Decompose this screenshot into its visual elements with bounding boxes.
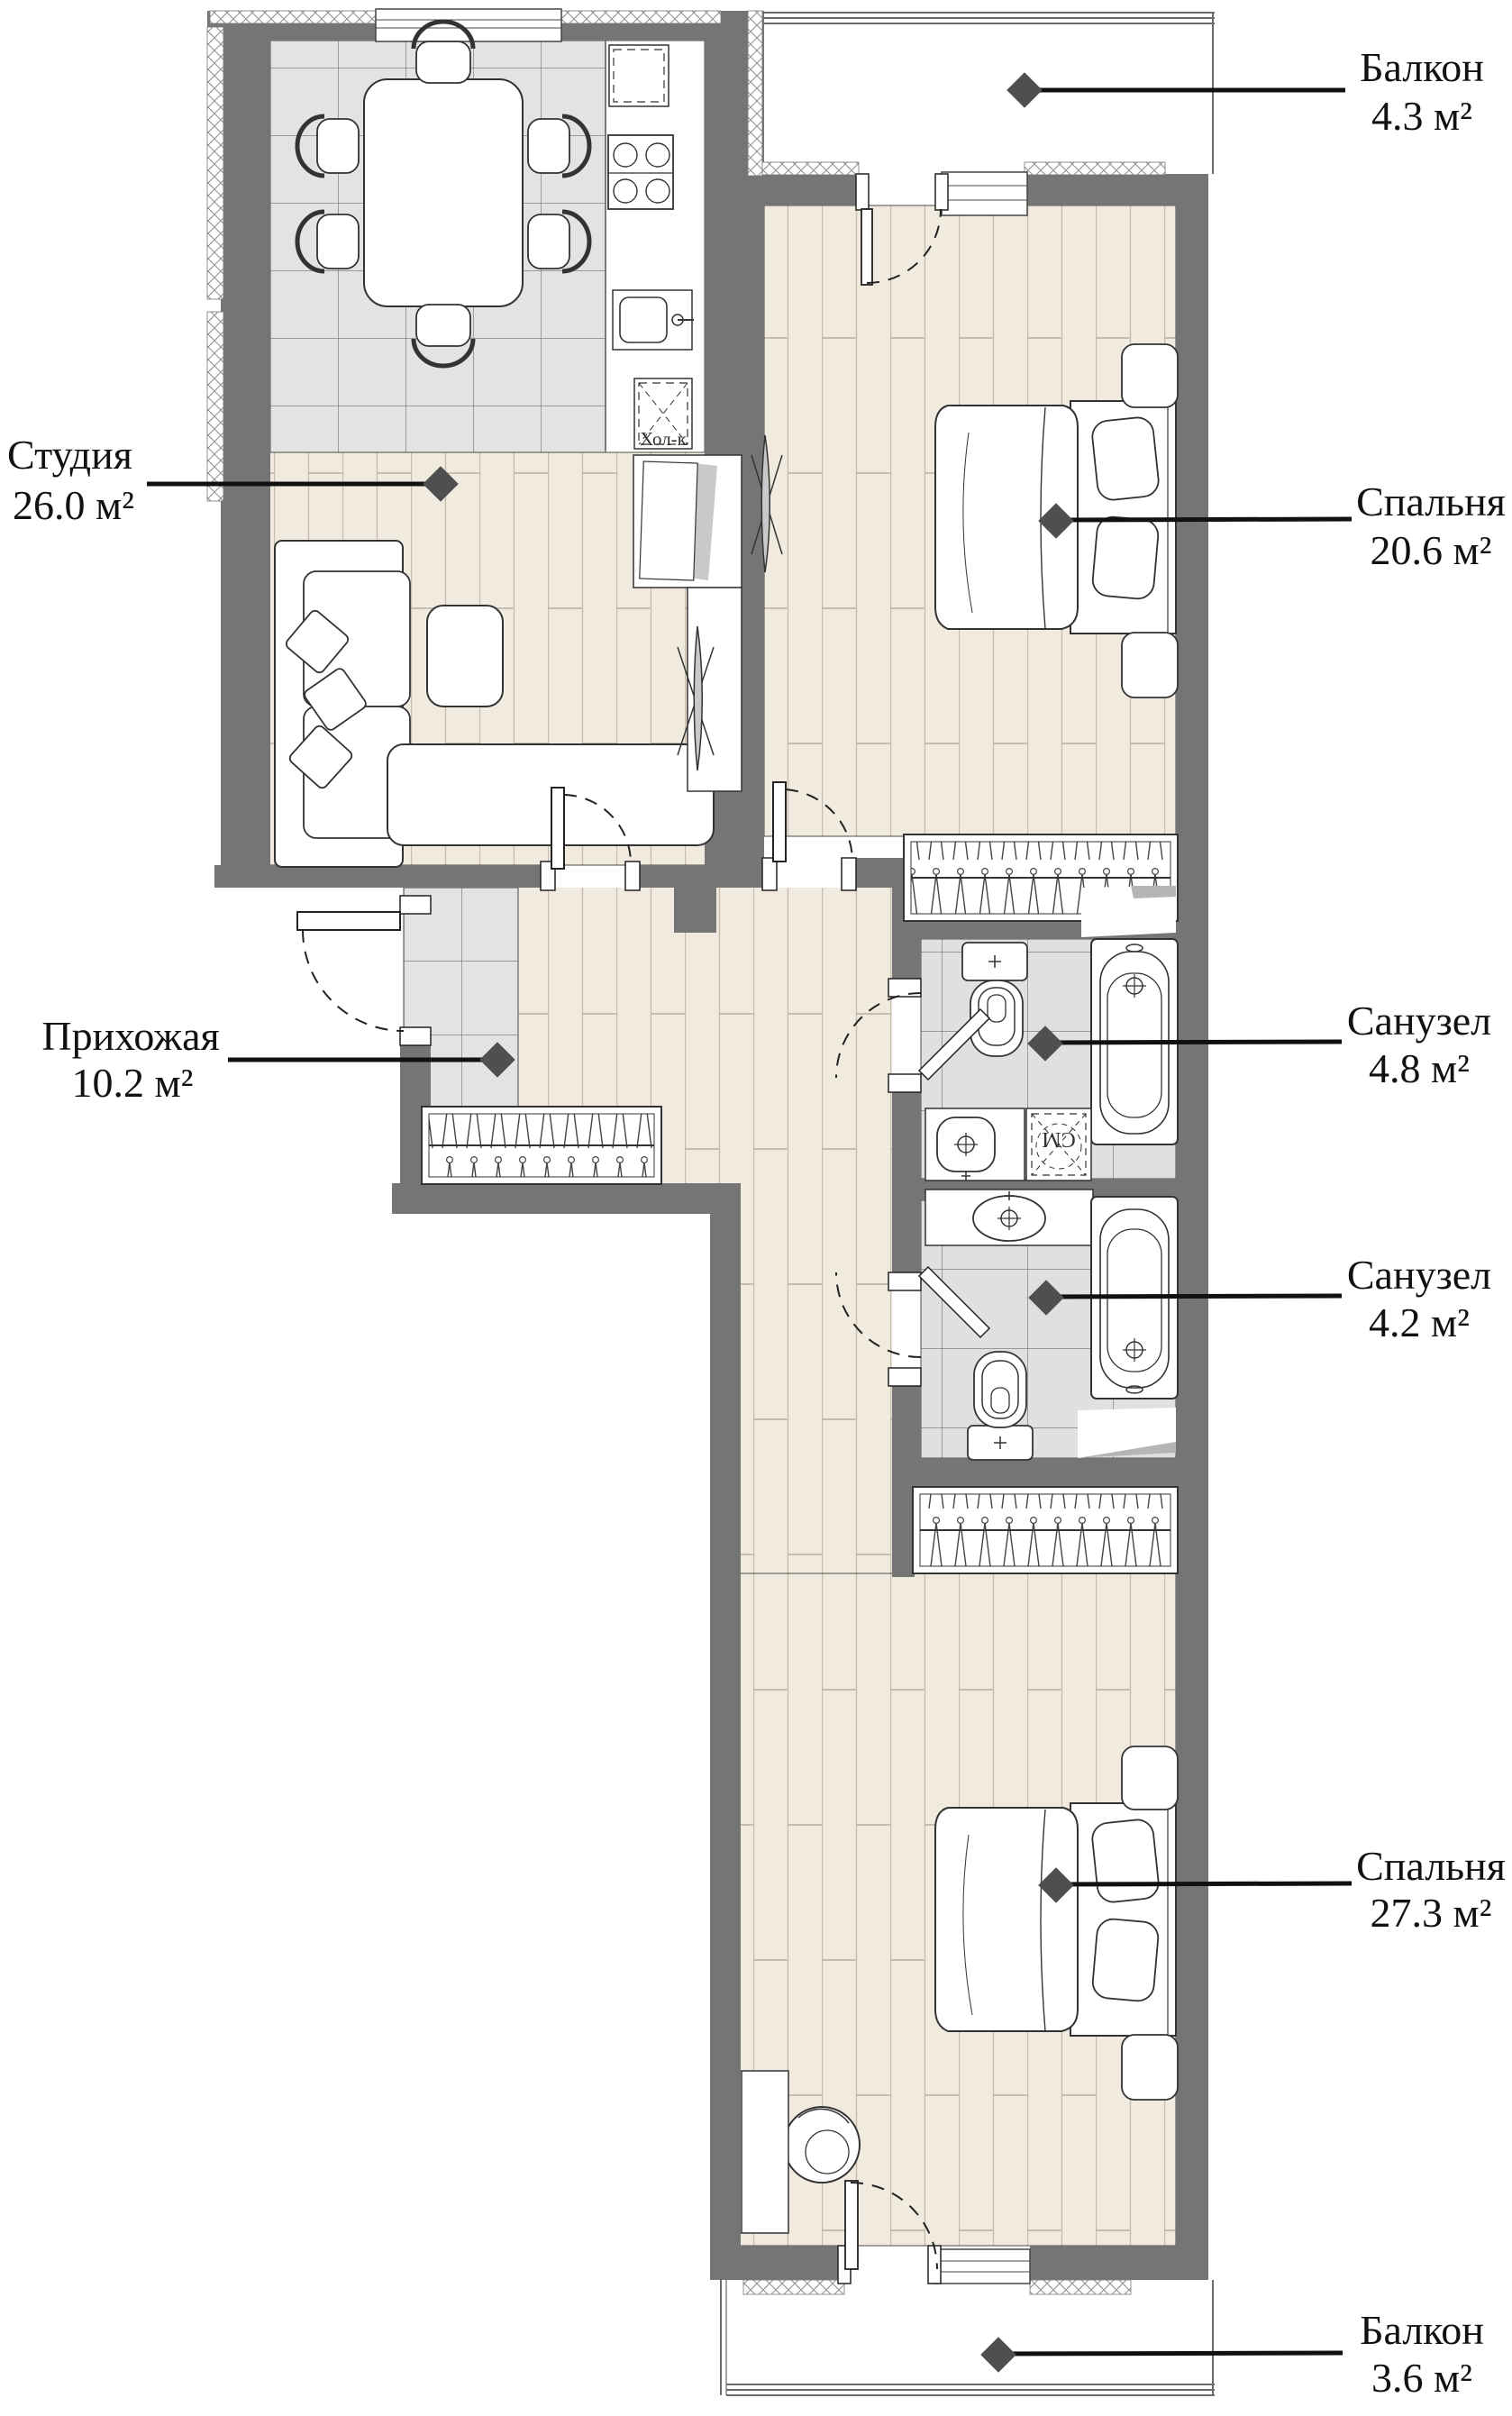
nightstand xyxy=(1122,344,1178,407)
wall-right xyxy=(1176,174,1208,2280)
label-balcony-bottom-area: 3.6 м² xyxy=(1371,2355,1472,2401)
kitchen-sink-icon xyxy=(613,290,694,350)
wall-balcony-top-left xyxy=(710,11,748,176)
wall-stub-corridor xyxy=(674,888,716,933)
corridor-floor xyxy=(739,1183,892,1573)
label-bedroom-top-name: Спальня xyxy=(1356,479,1506,524)
balcony-top-parapet xyxy=(748,11,1215,176)
wardrobe-hallway xyxy=(422,1107,661,1184)
bathroom-1-sink-icon xyxy=(925,1108,1025,1181)
left-window-1 xyxy=(207,27,223,299)
washer-label: СМ xyxy=(1042,1127,1075,1151)
bedroom-top-window xyxy=(942,172,1027,215)
kitchen-cabinet xyxy=(609,45,669,106)
label-balcony-bottom-name: Балкон xyxy=(1360,2307,1484,2353)
label-studio-area: 26.0 м² xyxy=(13,482,134,528)
label-balcony-top-area: 4.3 м² xyxy=(1371,93,1472,139)
label-bedroom-bottom-area: 27.3 м² xyxy=(1371,1890,1492,1936)
toilet-2-icon xyxy=(968,1352,1033,1460)
stove-icon xyxy=(608,135,673,209)
dining-table xyxy=(364,79,523,306)
wall-bedroom-top-north-left xyxy=(705,174,859,205)
bedroom-bottom-window xyxy=(933,2249,1030,2284)
nightstand xyxy=(1122,633,1178,697)
wardrobe-bedroom-bottom xyxy=(913,1487,1178,1573)
fridge-label: Хол-к xyxy=(640,428,688,450)
wall-corridor-left xyxy=(710,1183,741,2273)
wall-left xyxy=(221,11,270,888)
wall-bathroom-2-bottom xyxy=(915,1458,1176,1489)
wall-studio-bottom-right xyxy=(631,865,764,888)
label-hallway-name: Прихожая xyxy=(41,1013,219,1059)
balcony-bottom-parapet xyxy=(721,2280,1215,2395)
tv-console xyxy=(678,588,742,791)
label-bathroom-2-name: Санузел xyxy=(1347,1252,1491,1298)
marker-balcony-top xyxy=(1006,72,1043,108)
console-table xyxy=(742,2071,788,2233)
coffee-table xyxy=(427,606,503,707)
fridge-icon: Хол-к xyxy=(634,378,692,450)
wall-bedroom-top-north-right xyxy=(1025,174,1207,205)
floor-plan: Хол-к xyxy=(0,0,1512,2416)
toilet-1-icon xyxy=(962,943,1027,1056)
wall-bedroom-bottom-south-right xyxy=(1030,2246,1207,2280)
armchair xyxy=(784,2107,860,2183)
label-hallway-area: 10.2 м² xyxy=(72,1060,194,1106)
wall-studio-bottom-left xyxy=(214,865,550,888)
wall-hall-bottom xyxy=(392,1183,710,1214)
label-bedroom-bottom-name: Спальня xyxy=(1356,1843,1506,1889)
label-bedroom-top-area: 20.6 м² xyxy=(1371,527,1492,573)
label-bathroom-2-area: 4.2 м² xyxy=(1369,1299,1470,1345)
washing-machine-icon: СМ xyxy=(1026,1108,1091,1181)
studio-wardrobe xyxy=(633,455,742,588)
bathroom-2-sink-icon xyxy=(925,1190,1093,1245)
marker-balcony-bottom xyxy=(980,2337,1016,2373)
wall-bedroom-bottom-south-left xyxy=(710,2246,845,2280)
label-studio-name: Студия xyxy=(7,432,132,478)
left-window-2 xyxy=(207,312,223,501)
label-bathroom-1-area: 4.8 м² xyxy=(1369,1045,1470,1091)
label-balcony-top-name: Балкон xyxy=(1360,44,1484,90)
wall-bathroom-left xyxy=(892,1074,921,1272)
label-bathroom-1-name: Санузел xyxy=(1347,998,1491,1044)
